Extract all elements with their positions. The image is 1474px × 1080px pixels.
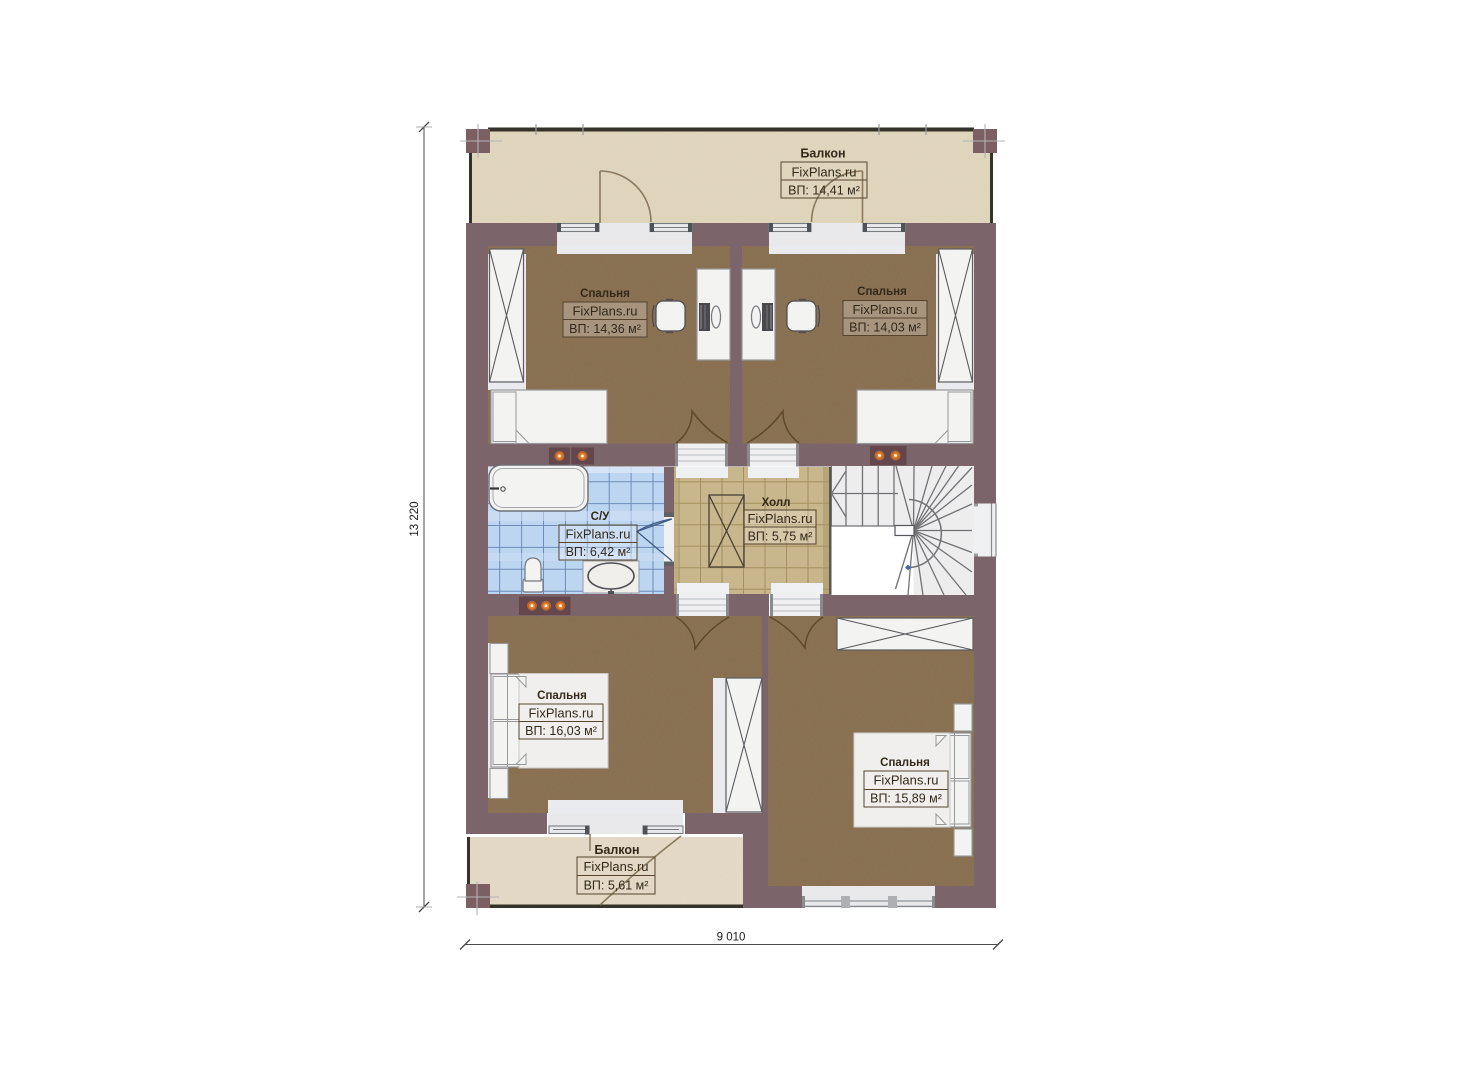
svg-text:FixPlans.ru: FixPlans.ru bbox=[747, 511, 812, 526]
svg-text:13 220: 13 220 bbox=[409, 501, 421, 536]
svg-text:FixPlans.ru: FixPlans.ru bbox=[873, 773, 938, 788]
svg-text:С/У: С/У bbox=[591, 511, 611, 523]
svg-text:ВП: 14,41 м²: ВП: 14,41 м² bbox=[788, 184, 860, 198]
svg-text:FixPlans.ru: FixPlans.ru bbox=[572, 304, 637, 319]
svg-text:ВП: 6,42 м²: ВП: 6,42 м² bbox=[566, 545, 631, 559]
svg-text:ВП: 15,89 м²: ВП: 15,89 м² bbox=[870, 792, 942, 806]
svg-text:ВП: 14,03 м²: ВП: 14,03 м² bbox=[849, 321, 921, 335]
svg-text:Спальня: Спальня bbox=[580, 288, 630, 300]
svg-text:FixPlans.ru: FixPlans.ru bbox=[583, 859, 648, 874]
svg-text:Спальня: Спальня bbox=[537, 690, 587, 702]
svg-text:FixPlans.ru: FixPlans.ru bbox=[791, 165, 856, 180]
svg-text:Балкон: Балкон bbox=[594, 843, 639, 857]
svg-text:Спальня: Спальня bbox=[880, 757, 930, 769]
svg-text:FixPlans.ru: FixPlans.ru bbox=[565, 527, 630, 542]
svg-text:ВП: 5,61 м²: ВП: 5,61 м² bbox=[584, 879, 649, 893]
svg-text:Балкон: Балкон bbox=[800, 147, 845, 161]
svg-text:FixPlans.ru: FixPlans.ru bbox=[528, 706, 593, 721]
svg-text:Спальня: Спальня bbox=[857, 286, 907, 298]
svg-text:ВП: 5,75 м²: ВП: 5,75 м² bbox=[748, 530, 813, 544]
svg-text:ВП: 14,36 м²: ВП: 14,36 м² bbox=[569, 322, 641, 336]
svg-text:Холл: Холл bbox=[762, 497, 791, 509]
svg-text:FixPlans.ru: FixPlans.ru bbox=[852, 302, 917, 317]
svg-text:9 010: 9 010 bbox=[717, 932, 746, 944]
svg-text:ВП: 16,03 м²: ВП: 16,03 м² bbox=[525, 724, 597, 738]
